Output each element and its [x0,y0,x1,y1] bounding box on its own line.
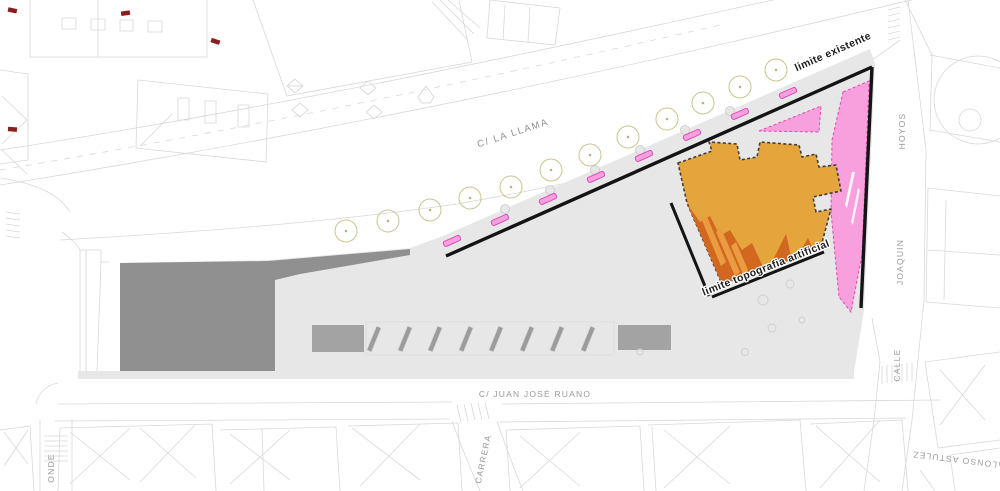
street-label-alonso-astulez: ALONSO ASTULEZ [912,449,1000,470]
street-label-calle: CALLE [892,349,902,382]
street-label-carrera: CARRERA [473,434,493,485]
street-label-juan-jose-ruano: C/ JUAN JOSÉ RUANO [479,389,591,399]
kiosk-block-west [312,325,364,352]
site-plan-drawing: C/ LA LLAMA C/ JUAN JOSÉ RUANO CARRERA H… [0,0,1000,491]
street-label-hoyos: HOYOS [897,113,907,150]
red-survey-marks [8,7,221,132]
site-plan-canvas: C/ LA LLAMA C/ JUAN JOSÉ RUANO CARRERA H… [0,0,1000,491]
street-label-la-llama: C/ LA LLAMA [476,117,550,151]
street-label-onde: ONDE [46,453,56,482]
street-label-joaquin: JOAQUIN [895,239,905,285]
kiosk-block-east [618,325,671,350]
